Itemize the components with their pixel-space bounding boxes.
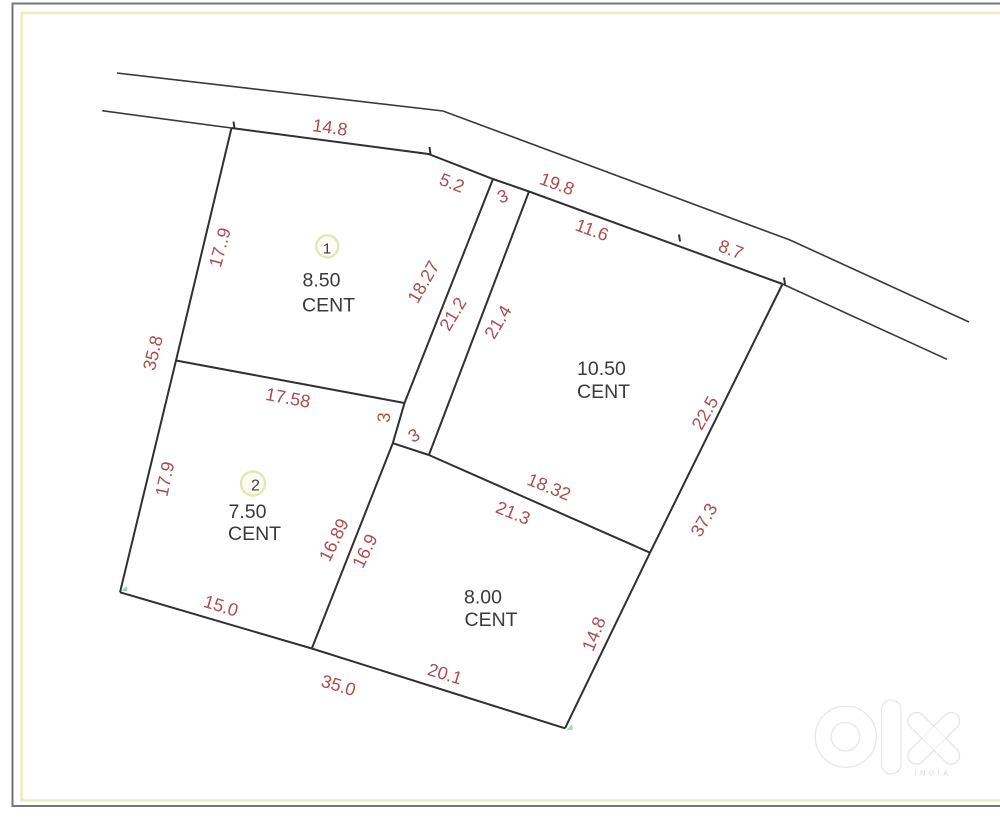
svg-text:2: 2 — [251, 478, 260, 495]
svg-text:8.50: 8.50 — [303, 269, 341, 291]
svg-text:1: 1 — [323, 240, 331, 257]
svg-text:CENT: CENT — [577, 381, 630, 403]
svg-text:7.50: 7.50 — [229, 501, 267, 523]
svg-text:CENT: CENT — [465, 609, 518, 631]
svg-text:CENT: CENT — [228, 523, 281, 545]
svg-text:10.50: 10.50 — [577, 358, 626, 380]
svg-text:8.00: 8.00 — [464, 587, 502, 609]
svg-text:INDIA: INDIA — [915, 768, 952, 777]
svg-text:CENT: CENT — [302, 295, 355, 317]
svg-text:3: 3 — [374, 412, 395, 424]
